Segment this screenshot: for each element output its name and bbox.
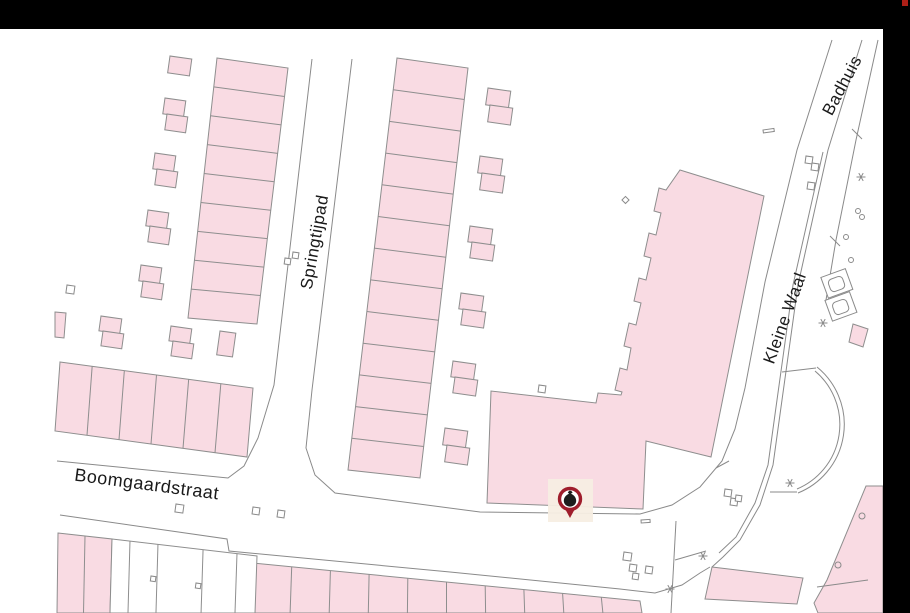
shed (148, 226, 171, 245)
small-structure-square (277, 510, 285, 518)
right-letterbox-bar (883, 0, 910, 613)
small-structure-square (724, 489, 732, 497)
small-structure-square (252, 507, 260, 515)
small-structure-square (807, 182, 815, 190)
small-structure-square (623, 552, 632, 561)
shed (169, 326, 192, 344)
small-structure-square (150, 576, 156, 582)
shed (480, 173, 505, 193)
small-structure-square (66, 285, 75, 294)
red-corner-mark (902, 0, 908, 6)
shed (453, 377, 478, 396)
shed (146, 210, 169, 229)
small-structure-square (292, 252, 299, 259)
map-canvas[interactable]: SpringtijpadBoomgaardstraatKleine WaalBa… (0, 0, 910, 613)
small-structure-square (735, 495, 742, 502)
dash-symbol (641, 519, 650, 523)
shed (445, 445, 470, 465)
map-viewport[interactable]: SpringtijpadBoomgaardstraatKleine WaalBa… (0, 0, 910, 613)
shed (163, 98, 186, 117)
shed (486, 88, 511, 108)
small-structure-square (629, 564, 637, 572)
shed (165, 114, 188, 133)
shed (139, 265, 162, 284)
shed (155, 169, 178, 188)
top-letterbox-bar (0, 0, 910, 29)
shed (443, 428, 468, 448)
shed (470, 242, 495, 261)
small-structure-square (632, 573, 639, 580)
small-structure-square (195, 583, 201, 589)
shed (488, 105, 513, 125)
shed (153, 153, 176, 172)
small-structure-square (284, 258, 291, 265)
shed (141, 281, 164, 300)
shed (461, 309, 486, 328)
shed (478, 156, 503, 176)
small-structure-square (175, 504, 184, 513)
parcel-sliver-west (55, 312, 66, 338)
shed (171, 341, 194, 359)
small-structure-square (538, 385, 546, 393)
shed (168, 56, 192, 76)
small-structure-square (811, 163, 819, 171)
shed (217, 331, 236, 357)
small-structure-square (645, 566, 653, 574)
shed (99, 316, 122, 334)
shed (101, 331, 124, 349)
